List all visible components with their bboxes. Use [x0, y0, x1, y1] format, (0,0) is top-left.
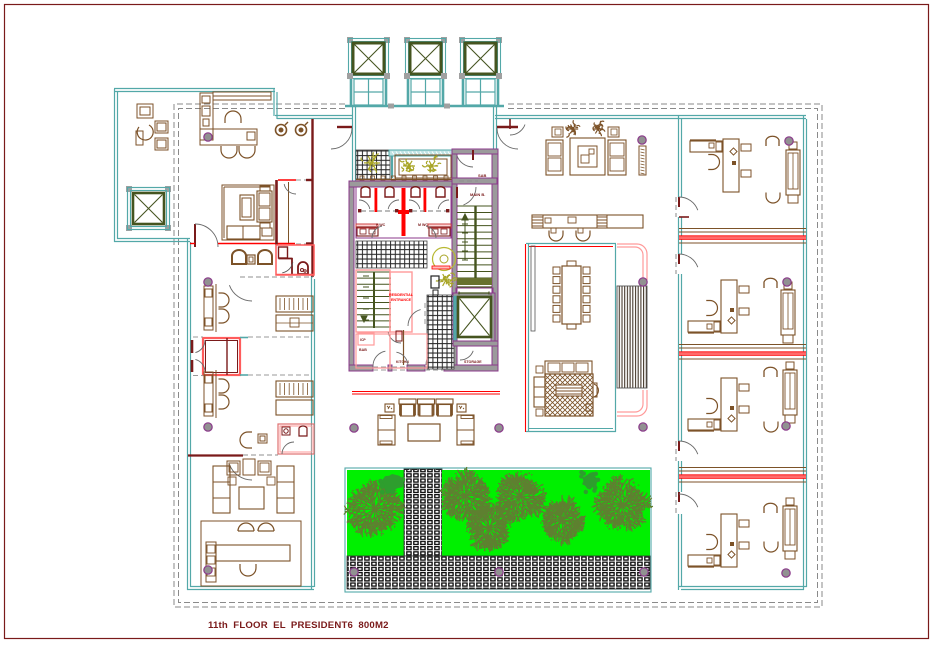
svg-text:ICP: ICP [360, 338, 366, 342]
svg-text:11th FLOOR EL PRESIDENT6 800M2: 11th FLOOR EL PRESIDENT6 800M2 [208, 620, 389, 631]
svg-text:STORAGE: STORAGE [464, 360, 482, 364]
svg-text:BAB: BAB [359, 348, 367, 352]
svg-text:RESIDENTIAL: RESIDENTIAL [389, 293, 414, 297]
svg-text:SAB: SAB [478, 173, 487, 178]
svg-text:ENTRANCE: ENTRANCE [391, 298, 412, 302]
svg-text:MAIN B.: MAIN B. [470, 192, 485, 197]
